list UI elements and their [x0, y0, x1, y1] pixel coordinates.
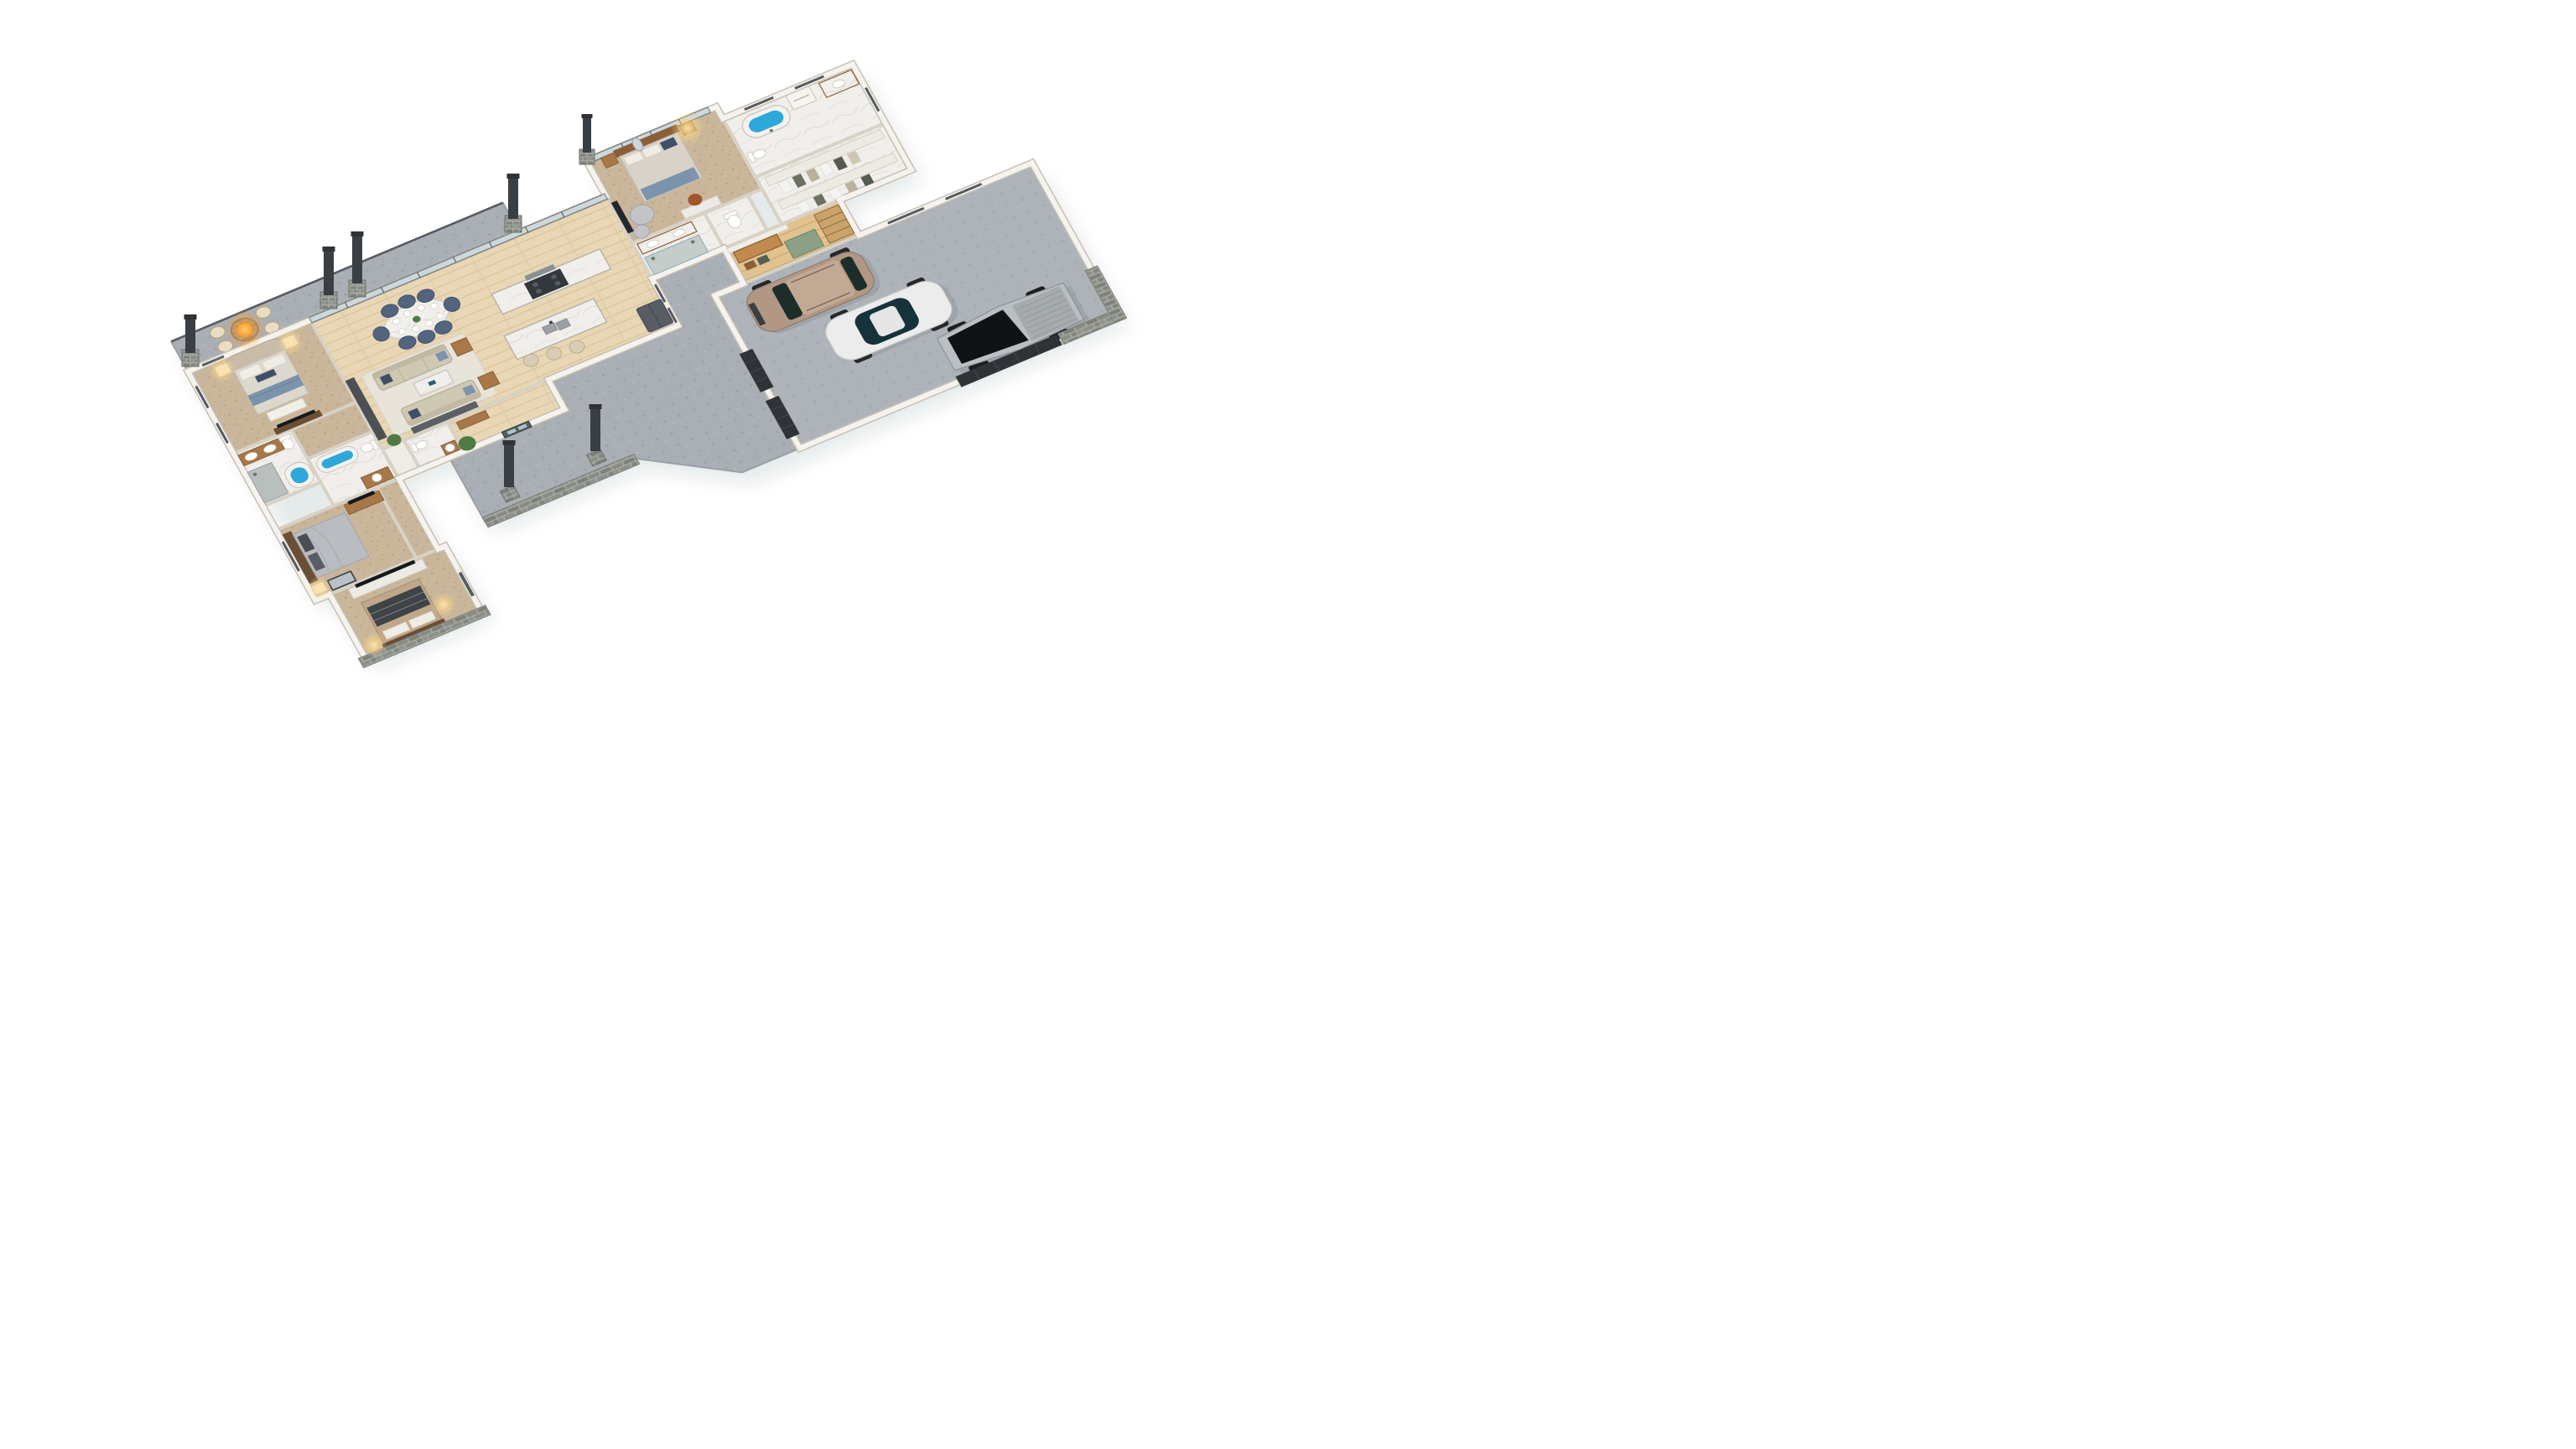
chimney-cap: [582, 114, 593, 118]
chimney-post: [352, 235, 362, 283]
chimney-post: [508, 177, 518, 219]
lamp-glow: [431, 592, 456, 617]
chimney-cap: [351, 231, 364, 236]
chimney-cap: [184, 314, 197, 319]
lamp-glow: [671, 112, 704, 145]
stone-pillar-chimney: [503, 440, 516, 487]
stone-pillar-chimney: [589, 404, 602, 451]
chimney-post: [324, 250, 334, 295]
fire-pit-glow: [225, 309, 265, 350]
chimney-post: [583, 117, 591, 153]
floor-plan-render: [0, 0, 1288, 724]
floor-plan-stage: [0, 0, 1288, 724]
chimney-post: [185, 318, 195, 353]
lamp-glow: [209, 356, 236, 383]
chimney-post: [590, 408, 600, 451]
lamp-glow: [277, 329, 304, 356]
stone-pillar-chimney: [579, 114, 595, 164]
chimney-cap: [589, 404, 602, 409]
chimney-cap: [503, 440, 516, 445]
lamp-glow: [308, 576, 331, 600]
stone-pillar-chimney: [505, 174, 522, 232]
chimney-cap: [507, 174, 520, 179]
chimney-post: [504, 444, 514, 487]
lamp-glow: [361, 632, 387, 657]
chimney-cap: [323, 247, 335, 252]
